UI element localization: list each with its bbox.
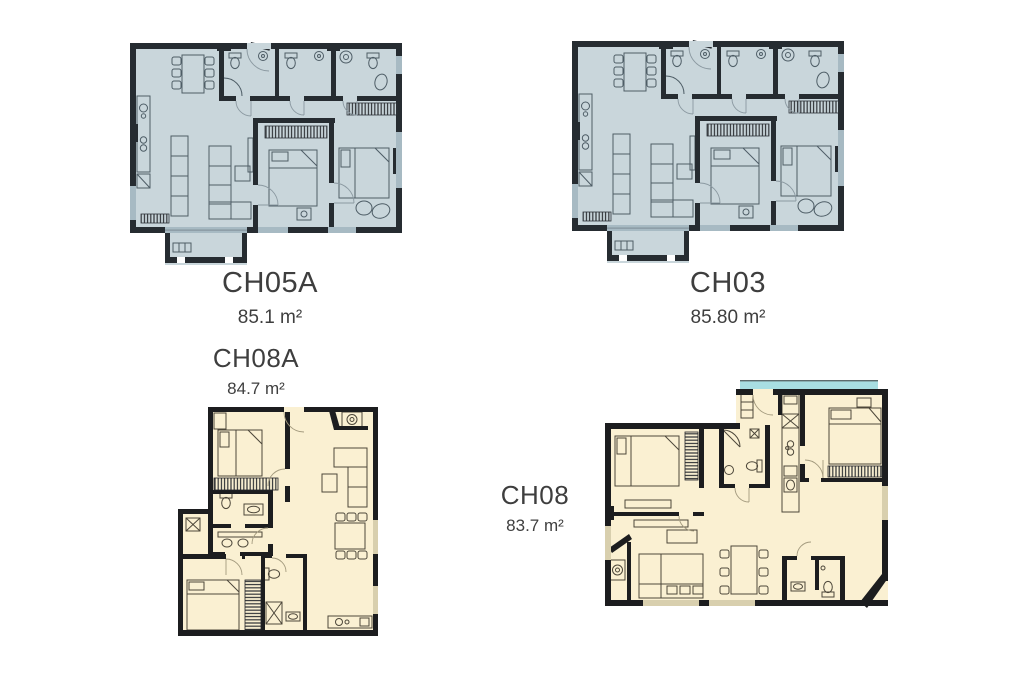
plan-code: CH03	[628, 268, 828, 300]
floorplan-ch05a	[127, 40, 405, 273]
plan-code: CH05A	[170, 268, 370, 300]
floorplan-ch03	[569, 38, 847, 271]
plan-area: 85.1 m²	[170, 307, 370, 329]
floorplan-ch08a	[172, 404, 384, 645]
label-ch08a: CH08A 84.7 m²	[156, 344, 356, 399]
label-ch08: CH08 83.7 m²	[455, 481, 615, 536]
balcony-glass-strip	[740, 381, 878, 390]
plan-code: CH08A	[156, 344, 356, 373]
plan-area: 83.7 m²	[455, 516, 615, 536]
floorplan-sheet: CH05A 85.1 m² CH03 85.80 m² CH08A 84.7 m…	[0, 0, 1024, 683]
floorplan-ch08-drawing	[601, 378, 893, 610]
floorplan-ch08a-drawing	[172, 404, 384, 640]
label-ch05a: CH05A 85.1 m²	[170, 268, 370, 329]
plan-area: 84.7 m²	[156, 379, 356, 399]
floorplan-ch08	[601, 378, 893, 615]
plan-area: 85.80 m²	[628, 307, 828, 329]
plan-code: CH08	[455, 481, 615, 510]
floorplan-ch03-drawing	[569, 38, 847, 266]
floorplan-ch05a-drawing	[127, 40, 405, 268]
label-ch03: CH03 85.80 m²	[628, 268, 828, 329]
